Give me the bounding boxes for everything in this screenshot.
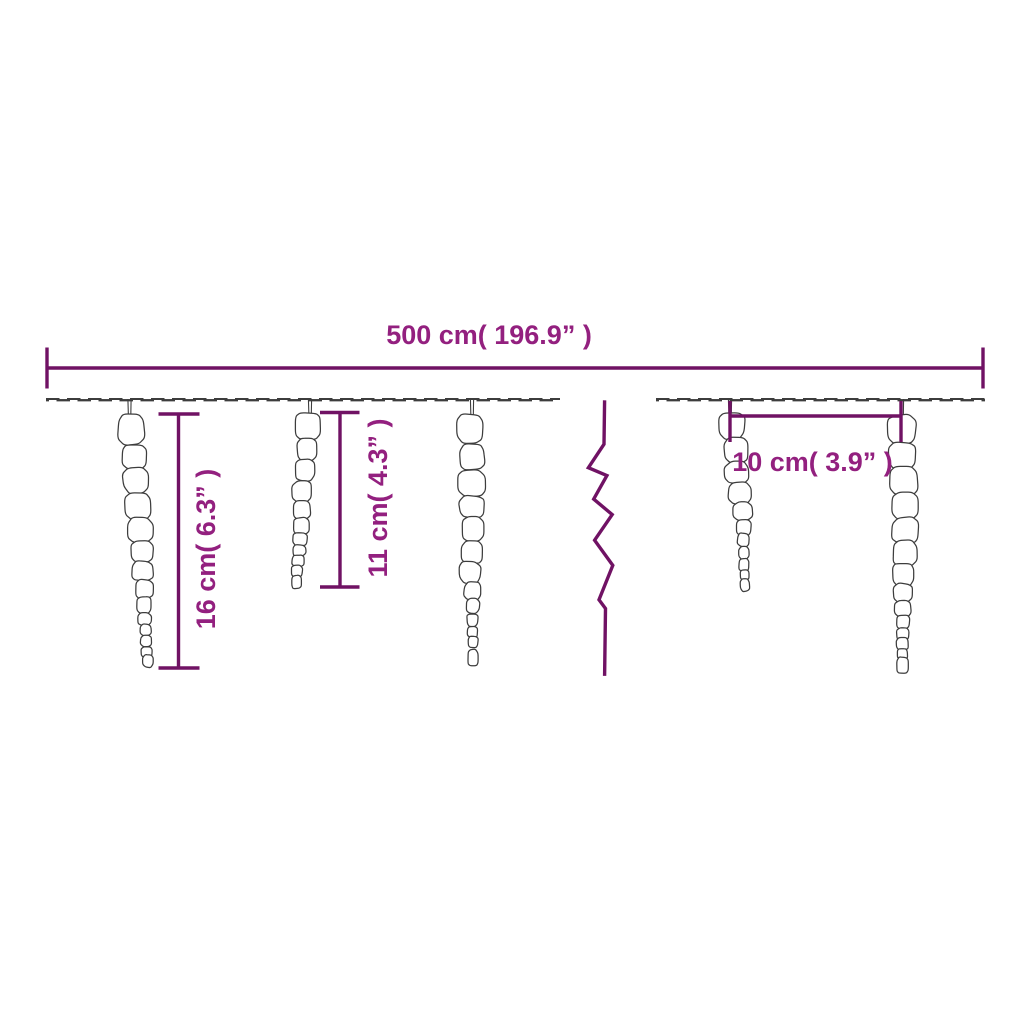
svg-text:10 cm( 3.9” ): 10 cm( 3.9” ) [732,447,893,477]
svg-text:11 cm( 4.3” ): 11 cm( 4.3” ) [363,418,393,577]
svg-text:16 cm( 6.3” ): 16 cm( 6.3” ) [191,469,221,630]
svg-text:500 cm( 196.9” ): 500 cm( 196.9” ) [386,320,592,350]
